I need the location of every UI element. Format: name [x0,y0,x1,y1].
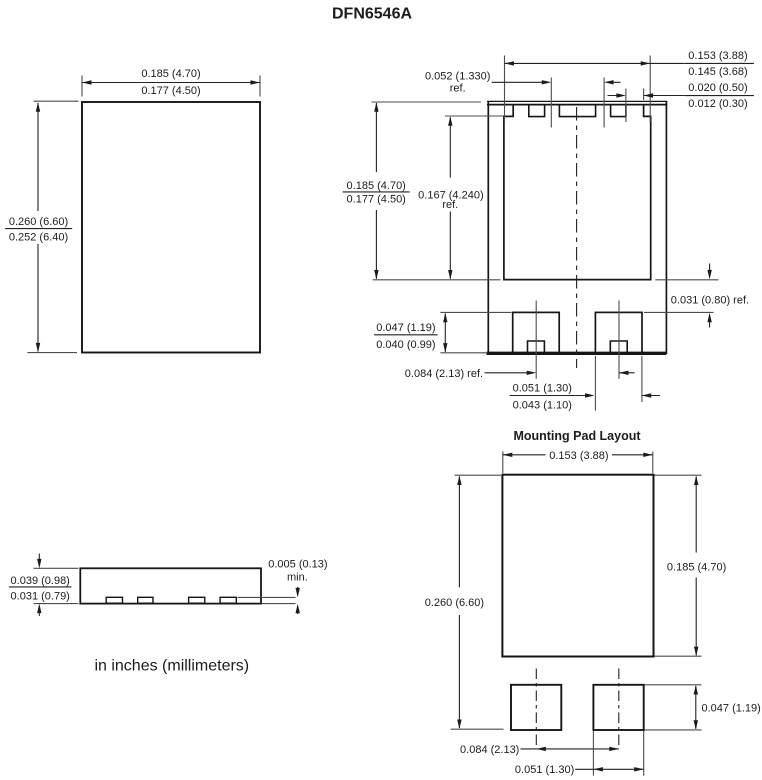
svg-text:0.047 (1.19): 0.047 (1.19) [702,702,761,714]
svg-text:min.: min. [287,572,308,584]
svg-text:0.031 (0.80) ref.: 0.031 (0.80) ref. [671,294,749,306]
svg-text:0.020 (0.50): 0.020 (0.50) [688,82,747,94]
svg-text:0.145 (3.68): 0.145 (3.68) [688,66,747,78]
svg-text:0.051 (1.30): 0.051 (1.30) [515,764,574,776]
svg-text:0.005 (0.13): 0.005 (0.13) [268,558,327,570]
svg-text:0.043 (1.10): 0.043 (1.10) [513,399,572,411]
svg-text:0.260 (6.60): 0.260 (6.60) [425,597,484,609]
svg-text:0.260 (6.60): 0.260 (6.60) [9,216,68,228]
svg-text:0.153 (3.88): 0.153 (3.88) [549,450,608,462]
svg-text:0.084 (2.13): 0.084 (2.13) [460,744,519,756]
svg-text:0.031 (0.79): 0.031 (0.79) [11,590,70,602]
svg-text:0.052 (1.330): 0.052 (1.330) [425,70,490,82]
svg-text:0.185 (4.70): 0.185 (4.70) [667,561,726,573]
svg-text:0.051 (1.30): 0.051 (1.30) [513,383,572,395]
svg-text:0.040 (0.99): 0.040 (0.99) [376,339,435,351]
svg-text:0.012 (0.30): 0.012 (0.30) [688,98,747,110]
svg-text:in inches (millimeters): in inches (millimeters) [94,657,249,674]
svg-text:0.039 (0.98): 0.039 (0.98) [11,575,70,587]
svg-text:0.185 (4.70): 0.185 (4.70) [141,68,200,80]
svg-text:0.153 (3.88): 0.153 (3.88) [688,50,747,62]
svg-text:0.252 (6.40): 0.252 (6.40) [9,231,68,243]
svg-text:0.185 (4.70): 0.185 (4.70) [347,180,406,192]
svg-text:ref.: ref. [442,199,458,211]
svg-text:0.177 (4.50): 0.177 (4.50) [347,193,406,205]
svg-text:0.177 (4.50): 0.177 (4.50) [141,85,200,97]
svg-text:ref.: ref. [450,83,466,95]
svg-text:0.047 (1.19): 0.047 (1.19) [376,322,435,334]
svg-text:0.084 (2.13) ref.: 0.084 (2.13) ref. [405,368,483,380]
svg-text:DFN6546A: DFN6546A [332,6,412,23]
svg-text:Mounting Pad Layout: Mounting Pad Layout [513,429,641,443]
